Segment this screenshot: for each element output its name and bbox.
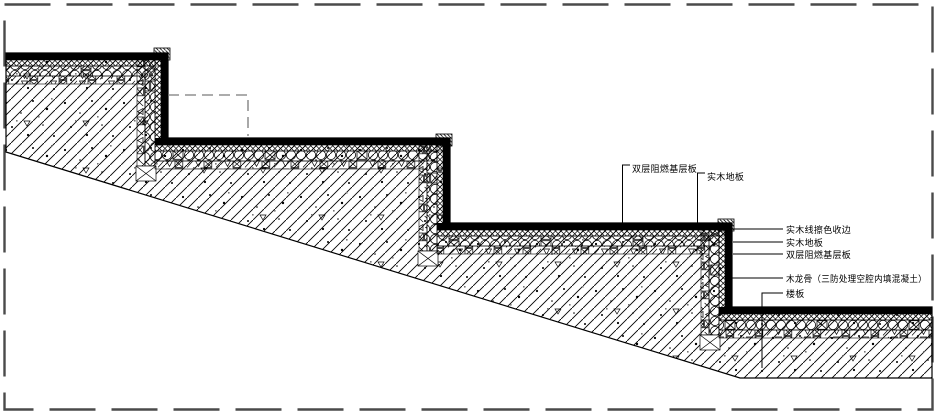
floor-layers <box>719 307 932 338</box>
label-top-wood-floor: 实木地板 <box>707 171 744 182</box>
leader-top-base-board <box>623 165 631 231</box>
label-base-board: 双层阻燃基层板 <box>786 249 851 260</box>
stair-detail-drawing: 双层阻燃基层板 实木地板 实木线擦色收边 实木地板 双层阻燃基层板 木龙骨（三防… <box>0 0 937 414</box>
label-wood-keel: 木龙骨（三防处理空腔内填混凝土） <box>786 273 927 284</box>
stair-section-svg: 双层阻燃基层板 实木地板 实木线擦色收边 实木地板 双层阻燃基层板 木龙骨（三防… <box>0 0 937 414</box>
tread-1-layers <box>6 53 168 84</box>
label-edge-trim: 实木线擦色收边 <box>786 224 851 235</box>
nosing-trim-3 <box>718 219 734 231</box>
label-floor-slab: 楼板 <box>786 288 805 299</box>
label-top-base-board: 双层阻燃基层板 <box>632 163 697 174</box>
nosing-trim-2 <box>436 134 452 146</box>
nosing-trim-1 <box>154 48 170 60</box>
tread-2-layers <box>155 138 450 169</box>
detail-callout-dashed-box <box>168 95 248 136</box>
label-wood-floor: 实木地板 <box>786 237 823 248</box>
leader-top-wood-floor <box>698 173 706 226</box>
tread-3-layers <box>437 223 732 254</box>
